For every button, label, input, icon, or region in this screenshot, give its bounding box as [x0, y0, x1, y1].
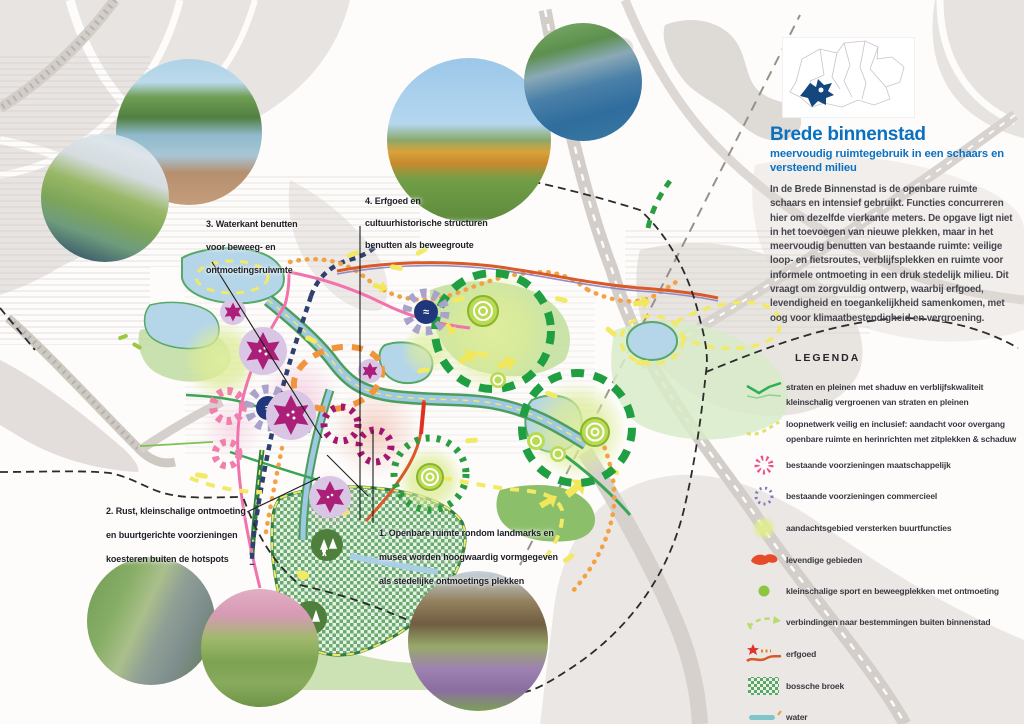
- legend-item-water: water: [742, 706, 1024, 724]
- legend-item-maatschappelijk: bestaande voorzieningen maatschappelijk: [742, 454, 1024, 476]
- red-star-wave-icon: [742, 642, 786, 666]
- annotation-3: 3. Waterkant benutten voor beweeg- en on…: [206, 213, 298, 282]
- page-title: Brede binnenstad: [770, 124, 926, 146]
- annotation-2: 2. Rust, kleinschalige ontmoeting en buu…: [106, 499, 246, 571]
- legend-item-aandachtsgebied: aandachtsgebied versterken buurtfuncties: [742, 516, 1024, 540]
- city-locator-inset-map: [782, 37, 915, 118]
- yellow-dashed-path-icon: [742, 417, 786, 439]
- legend-item-bossche-broek: bossche broek: [742, 675, 1024, 697]
- lime-glow-icon: [742, 516, 786, 540]
- pink-sun-icon: [742, 454, 786, 476]
- annotation-4: 4. Erfgoed en cultuurhistorische structu…: [365, 190, 488, 256]
- legend-item-verbindingen: verbindingen naar bestemmingen buiten bi…: [742, 611, 1024, 633]
- purple-stitched-circle-icon: [742, 485, 786, 507]
- legend-item-levendige: levendige gebieden: [742, 549, 1024, 571]
- poster: ≈ ≈ 1. Openbare ruimte rondom landmarks …: [0, 0, 1024, 724]
- svg-text:≈: ≈: [423, 307, 429, 319]
- photo-green-roof-buildings: [41, 134, 169, 262]
- red-blob-icon: [742, 549, 786, 571]
- photo-garden-terrace: [201, 589, 319, 707]
- legend-heading: LEGENDA: [795, 352, 1024, 364]
- page-subtitle: meervoudig ruimtegebruik in een schaars …: [770, 148, 1022, 175]
- legend-item-erfgoed: erfgoed: [742, 642, 1024, 666]
- photo-canal-boats: [524, 23, 642, 141]
- annotation-1: 1. Openbare ruimte rondom landmarks en m…: [379, 521, 558, 593]
- legend: LEGENDA straten en pleinen met shaduw en…: [742, 352, 1024, 724]
- green-street-lines-icon: [742, 380, 786, 402]
- intro-paragraph: In de Brede Binnenstad is de openbare ru…: [770, 183, 1014, 326]
- legend-item-commercieel: bestaande voorzieningen commercieel: [742, 485, 1024, 507]
- green-dashed-arrow-icon: [742, 611, 786, 633]
- legend-item-straten: straten en pleinen met shaduw en verblij…: [742, 380, 1024, 410]
- teal-bar-icon: [742, 706, 786, 724]
- photo-forest-path: [87, 557, 215, 685]
- legend-item-sport: kleinschalige sport en beweegplekken met…: [742, 580, 1024, 602]
- legend-item-loopnetwerk: loopnetwerk veilig en inclusief: aandach…: [742, 417, 1024, 447]
- green-checker-icon: [742, 675, 786, 697]
- green-dot-icon: [742, 580, 786, 602]
